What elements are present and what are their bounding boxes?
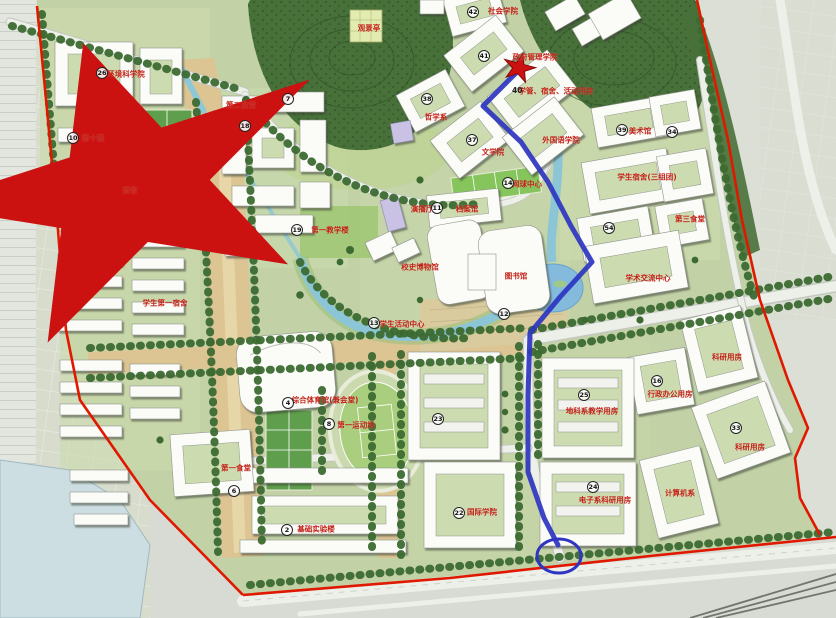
- campus-master-plan-map: 社会学院政府管理学院学管、宿舍、活动用房外国语学院哲学系文学院观景亭美术馆学生宿…: [0, 0, 836, 618]
- library-building: [425, 218, 551, 316]
- marked-star-icon: [81, 145, 178, 224]
- hill-pavilion: [350, 10, 382, 42]
- offsite-east-plots: [760, 0, 836, 320]
- map-canvas: [0, 0, 836, 618]
